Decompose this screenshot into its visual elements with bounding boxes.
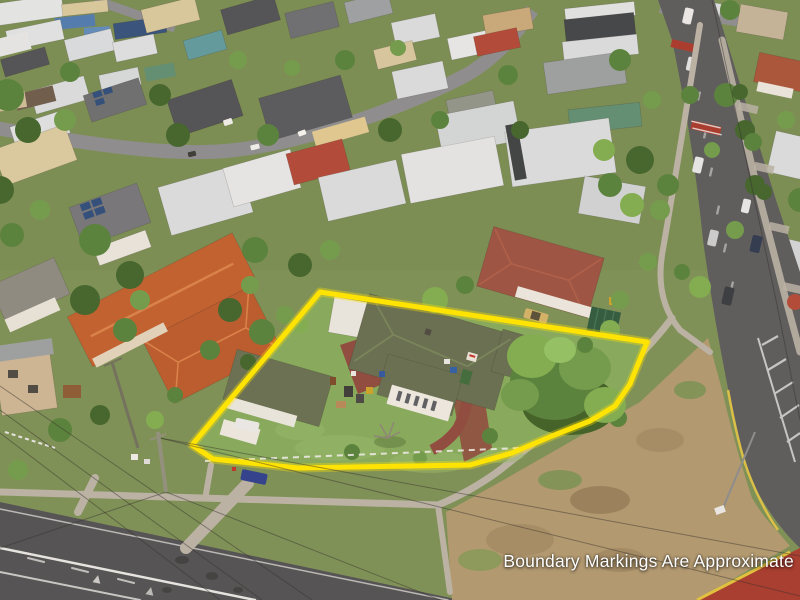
photo-tint	[0, 0, 800, 600]
real-estate-aerial-photo: Boundary Markings Are Approximate	[0, 0, 800, 600]
boundary-disclaimer-text: Boundary Markings Are Approximate	[503, 551, 794, 572]
aerial-scene	[0, 0, 800, 600]
